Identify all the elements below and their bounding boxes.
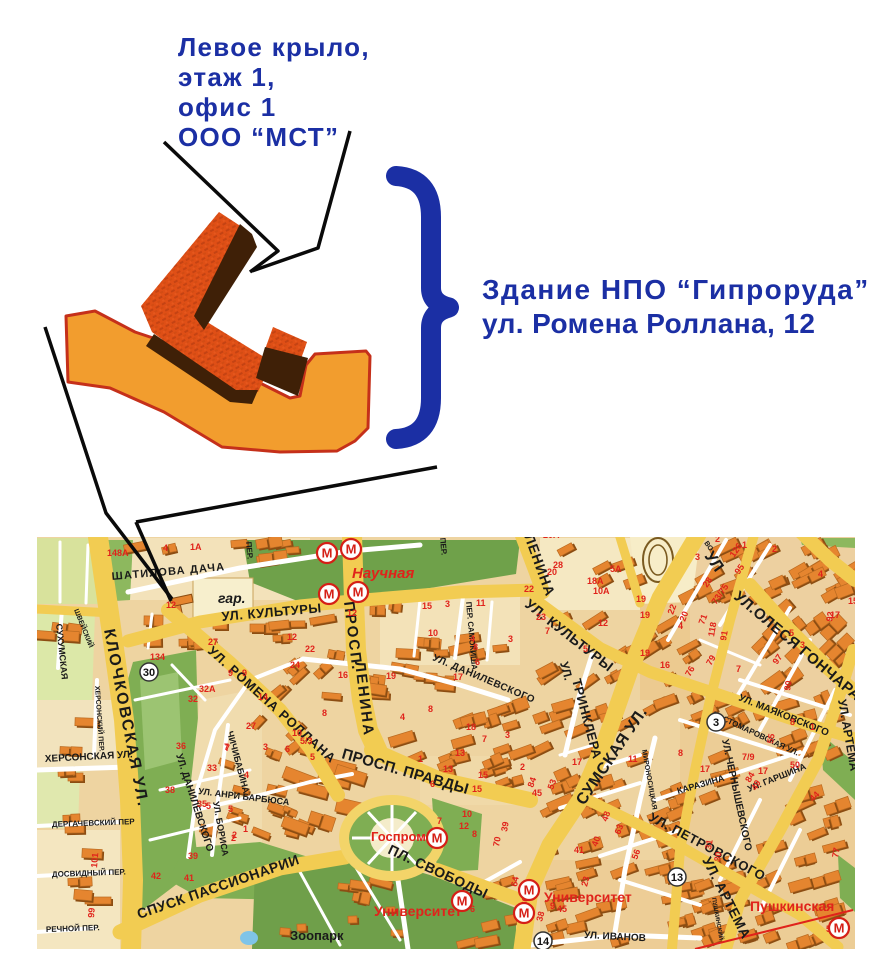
svg-text:11: 11 — [476, 598, 486, 608]
svg-text:19: 19 — [386, 671, 396, 681]
svg-text:7: 7 — [545, 626, 550, 636]
svg-text:8: 8 — [472, 829, 477, 839]
svg-text:6: 6 — [475, 657, 480, 667]
svg-text:50: 50 — [790, 760, 800, 770]
svg-text:10: 10 — [428, 628, 438, 638]
svg-text:17: 17 — [700, 764, 710, 774]
svg-text:15: 15 — [422, 601, 432, 611]
svg-text:148А: 148А — [107, 548, 129, 558]
svg-text:М: М — [432, 831, 443, 846]
svg-text:5А: 5А — [610, 564, 622, 574]
svg-text:70: 70 — [491, 836, 503, 848]
svg-text:10: 10 — [462, 809, 472, 819]
svg-text:2: 2 — [232, 830, 237, 840]
svg-text:91: 91 — [718, 630, 730, 642]
svg-text:32А: 32А — [199, 684, 216, 694]
svg-text:8: 8 — [678, 748, 683, 758]
svg-text:ООО “МСТ”: ООО “МСТ” — [178, 122, 339, 152]
svg-text:30: 30 — [712, 851, 724, 863]
svg-text:39: 39 — [499, 821, 511, 833]
svg-text:10: 10 — [292, 728, 302, 738]
svg-text:134: 134 — [150, 652, 165, 662]
svg-text:М: М — [519, 906, 530, 921]
svg-text:31: 31 — [703, 839, 715, 851]
svg-text:19: 19 — [640, 648, 650, 658]
svg-text:3: 3 — [505, 730, 510, 740]
svg-text:3: 3 — [263, 742, 268, 752]
svg-text:2: 2 — [772, 544, 777, 554]
svg-text:3: 3 — [713, 717, 719, 729]
svg-text:Пушкинская: Пушкинская — [750, 898, 834, 914]
svg-text:16: 16 — [660, 660, 670, 670]
svg-text:6: 6 — [430, 779, 435, 789]
svg-text:15: 15 — [848, 596, 858, 606]
svg-text:27: 27 — [208, 637, 218, 647]
svg-text:3: 3 — [695, 552, 700, 562]
svg-text:28: 28 — [553, 560, 563, 570]
svg-text:6: 6 — [285, 744, 290, 754]
svg-text:14: 14 — [258, 692, 268, 702]
svg-text:101: 101 — [89, 852, 100, 868]
svg-text:Зоопарк: Зоопарк — [290, 928, 344, 943]
svg-text:5: 5 — [206, 801, 211, 811]
svg-text:Университет: Университет — [544, 889, 632, 905]
svg-text:Здание НПО “Гипроруда”: Здание НПО “Гипроруда” — [482, 274, 870, 305]
svg-text:42: 42 — [151, 871, 161, 881]
svg-text:8: 8 — [790, 717, 795, 727]
svg-text:этаж 1,: этаж 1, — [178, 62, 276, 92]
svg-text:4: 4 — [400, 712, 405, 722]
svg-text:М: М — [524, 883, 535, 898]
svg-text:13: 13 — [443, 764, 453, 774]
svg-text:4: 4 — [678, 621, 683, 631]
svg-text:12: 12 — [459, 821, 469, 831]
svg-text:45: 45 — [557, 904, 567, 914]
svg-text:Научная: Научная — [352, 565, 414, 582]
svg-text:36: 36 — [176, 741, 186, 751]
svg-text:5: 5 — [310, 752, 315, 762]
svg-text:17: 17 — [758, 766, 768, 776]
svg-text:17: 17 — [830, 610, 840, 620]
svg-text:1: 1 — [742, 540, 747, 550]
svg-text:20А: 20А — [543, 530, 560, 540]
svg-text:Левое крыло,: Левое крыло, — [178, 32, 370, 62]
svg-text:18А: 18А — [587, 576, 604, 586]
svg-text:Университет: Университет — [374, 903, 462, 919]
svg-text:99: 99 — [86, 907, 97, 918]
svg-text:13: 13 — [671, 872, 683, 884]
svg-text:гар.: гар. — [218, 590, 246, 606]
svg-text:22: 22 — [524, 584, 534, 594]
svg-text:4: 4 — [818, 569, 823, 579]
svg-text:ПЕР.: ПЕР. — [438, 537, 448, 555]
svg-text:55: 55 — [765, 733, 777, 745]
svg-text:7: 7 — [736, 664, 741, 674]
svg-text:ПЕР.: ПЕР. — [244, 541, 254, 559]
svg-text:1: 1 — [243, 824, 248, 834]
svg-text:19: 19 — [636, 594, 646, 604]
svg-text:9: 9 — [550, 901, 555, 911]
svg-text:41: 41 — [184, 873, 194, 883]
svg-text:7: 7 — [482, 734, 487, 744]
svg-text:45: 45 — [532, 788, 542, 798]
svg-text:17: 17 — [453, 672, 463, 682]
svg-text:8: 8 — [428, 704, 433, 714]
svg-text:7: 7 — [437, 816, 442, 826]
svg-text:5: 5 — [789, 628, 794, 638]
svg-text:12: 12 — [287, 632, 297, 642]
svg-text:32: 32 — [188, 694, 198, 704]
svg-text:15: 15 — [478, 770, 488, 780]
svg-text:27: 27 — [246, 721, 256, 731]
svg-text:М: М — [324, 587, 335, 602]
svg-text:ул. Ромена Роллана, 12: ул. Ромена Роллана, 12 — [482, 308, 815, 339]
svg-text:М: М — [834, 921, 845, 936]
svg-text:19: 19 — [640, 610, 650, 620]
svg-text:17: 17 — [572, 757, 582, 767]
svg-text:12: 12 — [347, 608, 357, 618]
svg-text:41: 41 — [574, 845, 584, 855]
svg-text:9: 9 — [242, 668, 247, 678]
svg-text:10А: 10А — [593, 586, 610, 596]
svg-text:1: 1 — [810, 722, 815, 732]
svg-text:М: М — [353, 585, 364, 600]
svg-text:3: 3 — [445, 599, 450, 609]
svg-text:Госпром: Госпром — [371, 829, 426, 844]
svg-text:30: 30 — [143, 667, 155, 679]
svg-text:90: 90 — [782, 680, 794, 692]
svg-text:9: 9 — [228, 668, 233, 678]
svg-text:7: 7 — [224, 742, 229, 752]
svg-text:5: 5 — [583, 644, 588, 654]
svg-text:М: М — [457, 894, 468, 909]
svg-text:77: 77 — [830, 847, 842, 859]
svg-text:24: 24 — [290, 660, 300, 670]
svg-text:11: 11 — [628, 754, 638, 764]
svg-text:2: 2 — [520, 762, 525, 772]
svg-text:1А: 1А — [190, 542, 202, 552]
svg-text:8: 8 — [473, 642, 478, 652]
svg-text:офис 1: офис 1 — [178, 92, 277, 122]
svg-text:4: 4 — [163, 543, 168, 553]
svg-text:16: 16 — [338, 670, 348, 680]
svg-text:38: 38 — [165, 785, 175, 795]
svg-text:М: М — [322, 546, 333, 561]
svg-text:23: 23 — [536, 612, 546, 622]
svg-text:14: 14 — [537, 936, 550, 948]
svg-text:РЕЧНОЙ ПЕР.: РЕЧНОЙ ПЕР. — [46, 923, 100, 934]
svg-text:12: 12 — [598, 618, 608, 628]
svg-text:33: 33 — [207, 763, 217, 773]
svg-text:8: 8 — [322, 708, 327, 718]
svg-text:22: 22 — [305, 644, 315, 654]
svg-text:13: 13 — [455, 748, 465, 758]
svg-text:12: 12 — [166, 600, 176, 610]
svg-text:4: 4 — [244, 770, 249, 780]
svg-text:39: 39 — [188, 851, 198, 861]
svg-text:15: 15 — [472, 784, 482, 794]
svg-text:2: 2 — [715, 534, 720, 544]
svg-text:3: 3 — [800, 640, 805, 650]
svg-text:7/9: 7/9 — [742, 752, 755, 762]
svg-text:5: 5 — [228, 804, 233, 814]
svg-text:18: 18 — [466, 722, 476, 732]
svg-text:1: 1 — [418, 754, 423, 764]
svg-text:М: М — [346, 542, 357, 557]
svg-text:3: 3 — [508, 634, 513, 644]
